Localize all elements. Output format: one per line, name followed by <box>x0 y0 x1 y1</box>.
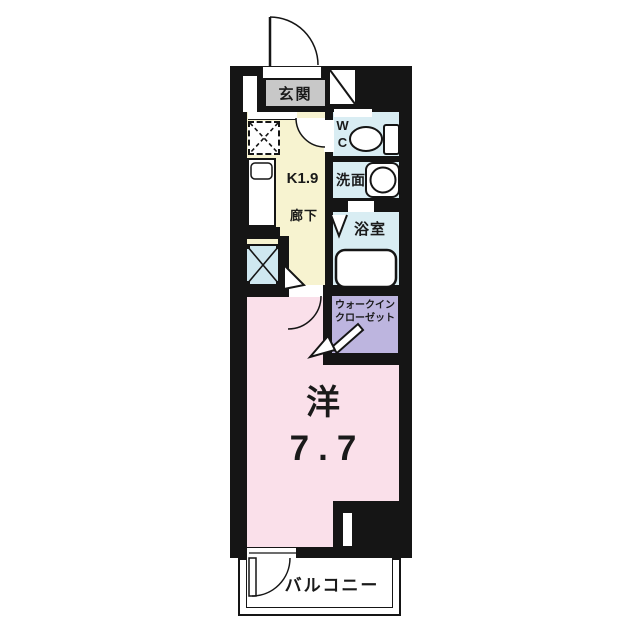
bathroom-label: 浴室 <box>351 219 389 237</box>
bathroom-door-opening <box>348 201 374 212</box>
balcony-door-opening <box>247 548 296 558</box>
wc-door-opening <box>324 120 334 152</box>
window-slit <box>343 513 352 546</box>
wc-sill <box>334 109 372 117</box>
refrigerator-space <box>248 121 280 155</box>
kitchen-wall <box>247 227 280 239</box>
entrance-label: 玄関 <box>278 83 312 104</box>
wc-label: W C <box>334 117 351 153</box>
pipe-space <box>243 76 257 112</box>
corridor-label-text: 廊下 <box>290 205 318 224</box>
kitchen-counter <box>247 158 276 227</box>
entrance-step <box>248 112 297 120</box>
washroom-label: 洗面 <box>334 171 368 188</box>
room-size-label: 7.7 <box>290 425 366 473</box>
western-room-label: 洋 7.7 <box>258 374 388 480</box>
entrance-door-arc <box>270 17 318 65</box>
bathroom-label-text: 浴室 <box>354 218 386 239</box>
balcony-label-text: バルコニー <box>285 571 380 596</box>
wc-label-line1: W <box>334 117 351 134</box>
closet-label-line2: クローゼット <box>331 312 399 325</box>
kitchen-label: K1.9 <box>280 169 325 188</box>
corridor-bottom-wall <box>235 285 285 297</box>
floor-plan: 玄関 W C 洗面 浴室 ウォークイン クローゼット <box>0 0 640 640</box>
room-type-label: 洋 <box>306 381 340 425</box>
room-door-opening <box>285 285 323 297</box>
washer-pan <box>245 244 281 286</box>
balcony-label: バルコニー <box>278 571 386 595</box>
closet-label: ウォークイン クローゼット <box>331 299 399 325</box>
washroom-label-text: 洗面 <box>336 170 366 190</box>
wc-label-line2: C <box>334 134 351 151</box>
closet-label-line1: ウォークイン <box>331 299 399 312</box>
corridor-label: 廊下 <box>283 206 325 222</box>
entrance-room: 玄関 <box>264 78 327 108</box>
kitchen-label-text: K1.9 <box>287 170 319 187</box>
shoe-cabinet <box>328 68 357 106</box>
